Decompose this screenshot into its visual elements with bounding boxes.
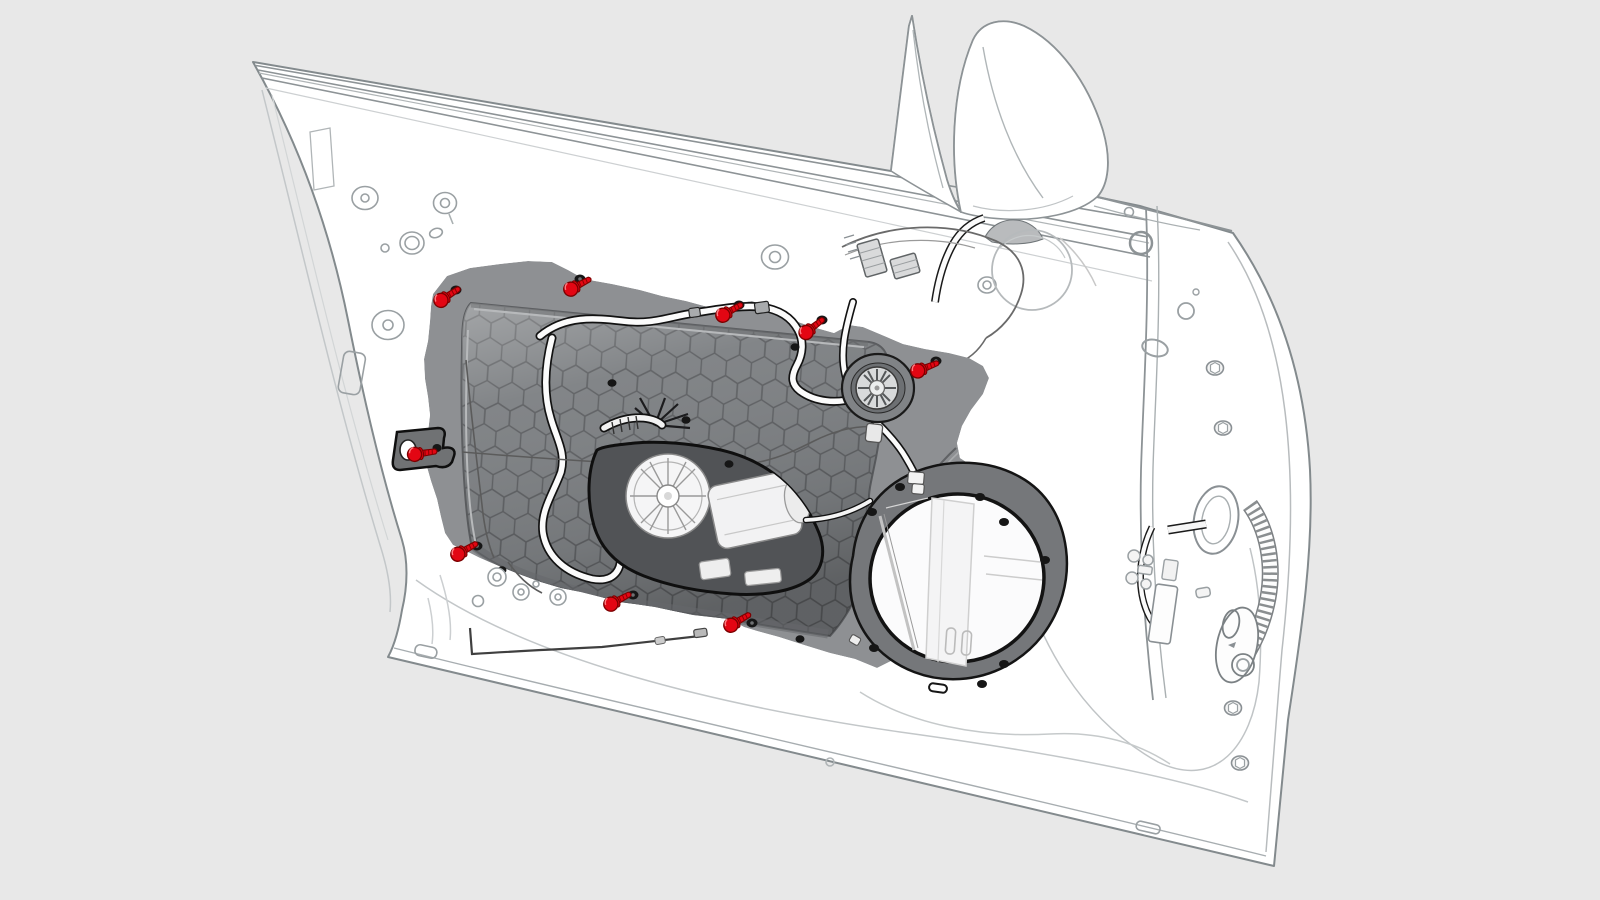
door-check-bracket (393, 428, 455, 470)
hex-bolt (1232, 756, 1249, 770)
harness-clip (688, 307, 700, 317)
trim-grommet (352, 187, 378, 210)
door-diagram (0, 0, 1600, 900)
harness-clip (754, 301, 769, 314)
hex-bolt (1207, 361, 1224, 375)
door-diagram-stage (0, 0, 1600, 900)
push-pin (434, 193, 457, 214)
drain-wire-connector (694, 628, 708, 638)
hex-bolt (1225, 701, 1242, 715)
push-pin (762, 245, 789, 269)
hex-bolt (1215, 421, 1232, 435)
